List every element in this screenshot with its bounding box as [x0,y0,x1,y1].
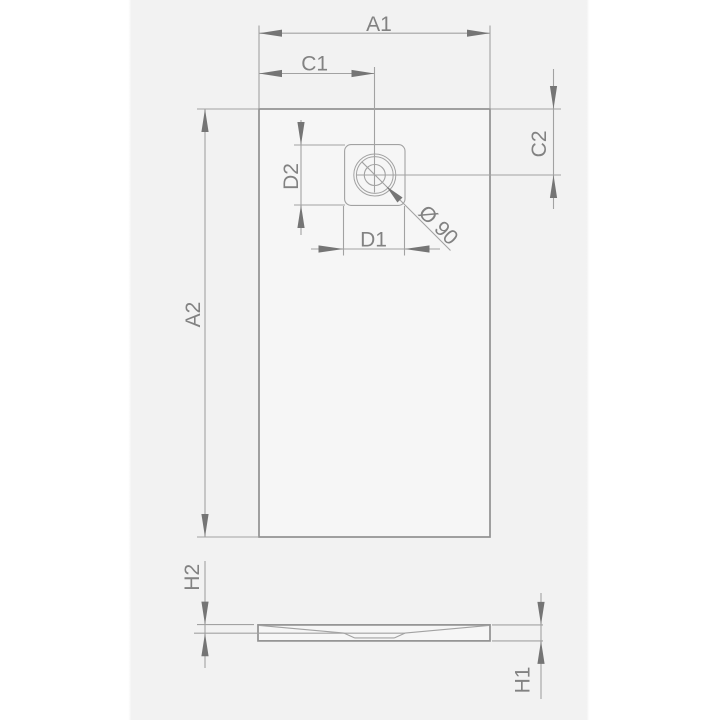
svg-text:H2: H2 [181,564,204,591]
svg-text:A1: A1 [366,13,392,36]
svg-text:D2: D2 [280,163,303,190]
svg-text:D1: D1 [360,228,387,251]
svg-text:H1: H1 [511,667,534,694]
svg-text:C2: C2 [528,130,551,157]
svg-text:A2: A2 [182,302,205,328]
svg-text:C1: C1 [301,52,328,75]
